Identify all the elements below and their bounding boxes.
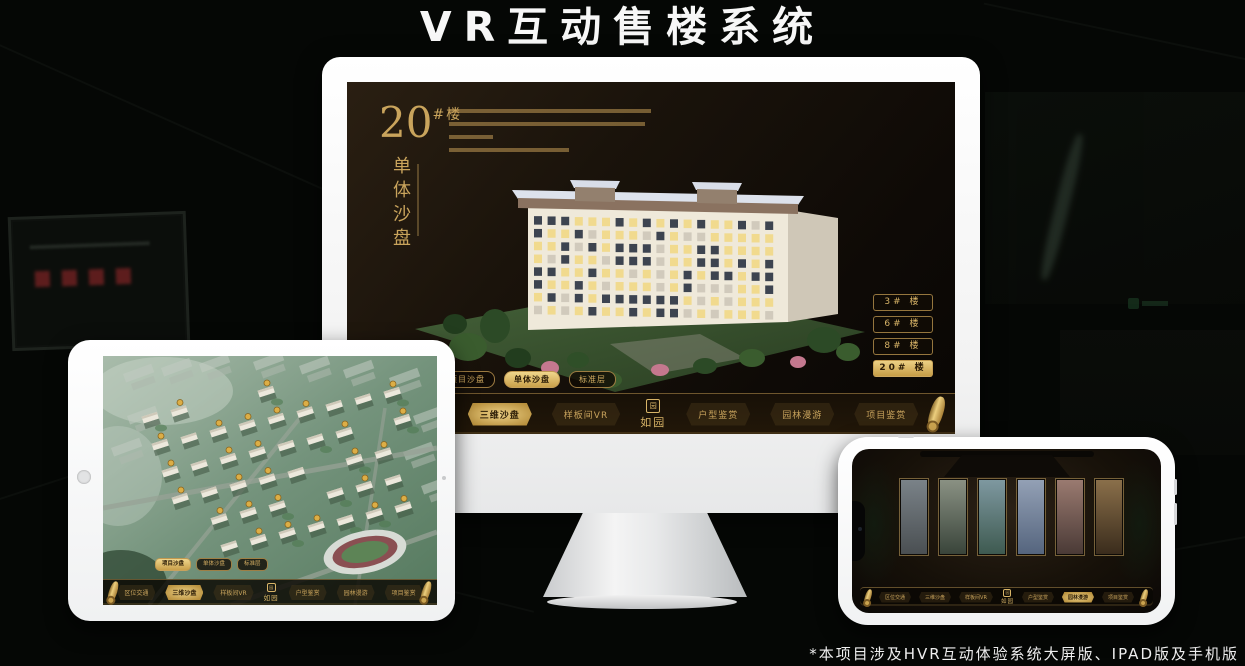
menu-item-户型鉴赏[interactable]: 户型鉴赏 — [686, 403, 750, 426]
phone-screen: 区位交通三维沙盘样板间VR 园 如园 户型鉴赏园林漫游项目鉴赏 — [852, 449, 1161, 613]
scene-panel-1[interactable] — [899, 478, 929, 556]
ruyuan-seal-icon: 园 — [267, 583, 276, 592]
promo-canvas: VR互动售楼系统 20#楼 单体沙盘 — [0, 0, 1245, 666]
ruyuan-logo[interactable]: 园 如园 — [640, 399, 666, 430]
phone-notch — [852, 501, 865, 561]
phone-device: 区位交通三维沙盘样板间VR 园 如园 户型鉴赏园林漫游项目鉴赏 — [838, 437, 1175, 625]
subtab-单体沙盘[interactable]: 单体沙盘 — [196, 558, 232, 571]
floor-button-3# 楼[interactable]: 3# 楼 — [873, 294, 933, 311]
scene-panel-6[interactable] — [1094, 478, 1124, 556]
menu-item-园林漫游[interactable]: 园林漫游 — [770, 403, 834, 426]
monitor-base — [547, 595, 737, 609]
ruyuan-seal-icon: 园 — [1003, 589, 1011, 597]
scene-panel-5[interactable] — [1055, 478, 1085, 556]
ruyuan-seal-icon: 园 — [646, 399, 660, 413]
menu-item-样板间VR[interactable]: 样板间VR — [959, 592, 993, 603]
menu-item-三维沙盘[interactable]: 三维沙盘 — [919, 592, 951, 603]
menu-item-项目鉴赏[interactable]: 项目鉴赏 — [1102, 592, 1134, 603]
menu-item-园林漫游[interactable]: 园林漫游 — [1062, 592, 1094, 603]
ruyuan-logo[interactable]: 园 如园 — [1001, 589, 1014, 605]
scene-panel-4[interactable] — [1016, 478, 1046, 556]
bg-aerial-photo — [985, 92, 1245, 304]
building-render — [400, 144, 880, 394]
scene-panel-2[interactable] — [938, 478, 968, 556]
tablet-menubar: 区位交通三维沙盘样板间VR 园 如园 户型鉴赏园林漫游项目鉴赏 — [103, 579, 437, 605]
camera-icon — [442, 476, 446, 480]
subtab-单体沙盘[interactable]: 单体沙盘 — [504, 371, 560, 388]
menu-item-户型鉴赏[interactable]: 户型鉴赏 — [289, 585, 327, 600]
menu-item-样板间VR[interactable]: 样板间VR — [552, 403, 620, 426]
home-button[interactable] — [77, 470, 91, 484]
power-button[interactable] — [1174, 503, 1177, 525]
menu-item-园林漫游[interactable]: 园林漫游 — [337, 585, 375, 600]
scroll-icon[interactable] — [1139, 588, 1150, 605]
scroll-icon[interactable] — [863, 588, 874, 605]
scroll-icon[interactable] — [925, 395, 948, 431]
page-title: VR互动售楼系统 — [0, 0, 1245, 54]
floor-button-group: 3# 楼6# 楼8# 楼20# 楼 — [873, 294, 933, 382]
menu-item-区位交通[interactable]: 区位交通 — [879, 592, 911, 603]
menu-item-项目鉴赏[interactable]: 项目鉴赏 — [385, 585, 423, 600]
phone-menubar: 区位交通三维沙盘样板间VR 园 如园 户型鉴赏园林漫游项目鉴赏 — [860, 587, 1153, 606]
menu-item-项目鉴赏[interactable]: 项目鉴赏 — [854, 403, 918, 426]
aerial-masterplan — [103, 356, 437, 605]
pavilion-silhouette — [932, 455, 1082, 477]
subtab-项目沙盘[interactable]: 项目沙盘 — [155, 558, 191, 571]
subtab-标准层[interactable]: 标准层 — [237, 558, 268, 571]
tablet-screen: 项目沙盘单体沙盘标准层 区位交通三维沙盘样板间VR 园 如园 户型鉴赏园林漫游项… — [103, 356, 437, 605]
footnote: *本项目涉及HVR互动体验系统大屏版、IPAD版及手机版 — [809, 643, 1239, 664]
tablet-device: 项目沙盘单体沙盘标准层 区位交通三维沙盘样板间VR 园 如园 户型鉴赏园林漫游项… — [68, 340, 455, 621]
building-number: 20 — [379, 98, 432, 147]
menu-item-三维沙盘[interactable]: 三维沙盘 — [468, 403, 532, 426]
subtab-标准层[interactable]: 标准层 — [569, 371, 616, 388]
menu-item-区位交通[interactable]: 区位交通 — [117, 585, 155, 600]
bg-road-line — [0, 35, 362, 208]
scene-panel-3[interactable] — [977, 478, 1007, 556]
menu-item-三维沙盘[interactable]: 三维沙盘 — [165, 585, 203, 600]
volume-button[interactable] — [1174, 479, 1177, 495]
floor-button-6# 楼[interactable]: 6# 楼 — [873, 316, 933, 333]
monitor-subtabs: 项目沙盘单体沙盘标准层 — [439, 371, 616, 388]
menu-item-样板间VR[interactable]: 样板间VR — [213, 585, 253, 600]
menu-item-户型鉴赏[interactable]: 户型鉴赏 — [1022, 592, 1054, 603]
bg-award-plaque — [8, 211, 191, 351]
tablet-subtabs: 项目沙盘单体沙盘标准层 — [155, 558, 268, 571]
monitor-stand — [543, 513, 747, 597]
scroll-icon[interactable] — [419, 580, 433, 603]
mute-switch[interactable] — [898, 435, 914, 438]
ruyuan-logo[interactable]: 园 如园 — [264, 583, 279, 602]
floor-button-8# 楼[interactable]: 8# 楼 — [873, 338, 933, 355]
scene-panel-row — [899, 478, 1124, 556]
bg-developer-logo — [1128, 298, 1139, 309]
floor-button-20# 楼[interactable]: 20# 楼 — [873, 360, 933, 377]
